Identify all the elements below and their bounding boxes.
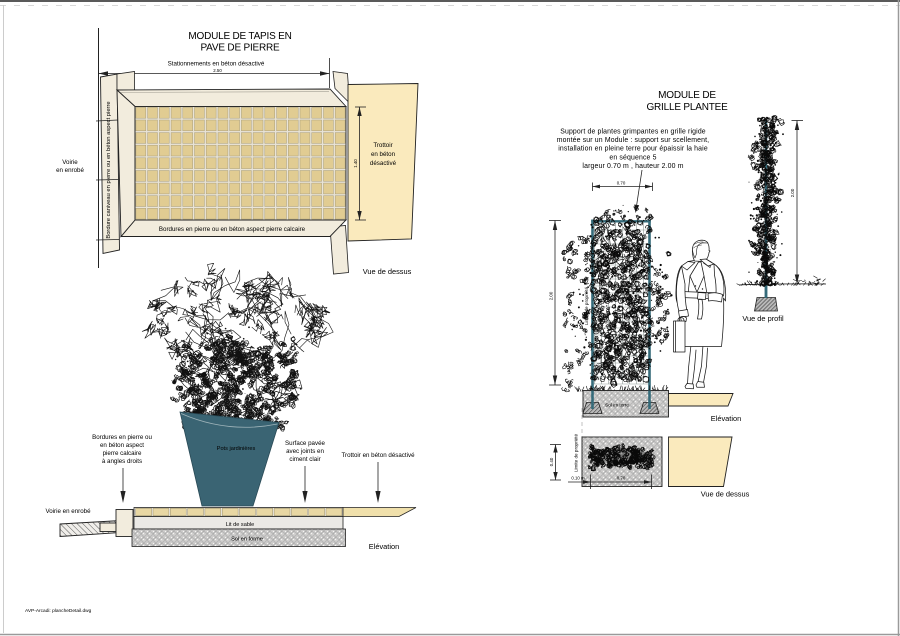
svg-text:Sol en forme: Sol en forme: [231, 537, 263, 543]
svg-text:montée sur un Module : support: montée sur un Module : support sur scell…: [557, 137, 709, 144]
svg-text:Vue de profil: Vue de profil: [742, 314, 784, 323]
svg-text:Sol en terre: Sol en terre: [605, 403, 629, 408]
svg-text:en enrobé: en enrobé: [56, 167, 84, 174]
svg-text:2.00: 2.00: [549, 291, 554, 300]
svg-text:Trottoir: Trottoir: [373, 142, 392, 149]
svg-text:2.00: 2.00: [790, 188, 795, 197]
svg-text:désactivé: désactivé: [370, 160, 397, 167]
svg-text:ciment clair: ciment clair: [289, 456, 320, 463]
svg-text:Lit de sable: Lit de sable: [226, 522, 255, 528]
svg-text:0.40: 0.40: [549, 457, 554, 466]
svg-text:en béton aspect: en béton aspect: [100, 442, 144, 449]
svg-text:AVP-Arcadi: plancheDetail.dwg: AVP-Arcadi: plancheDetail.dwg: [25, 608, 92, 614]
svg-text:Voirie: Voirie: [62, 159, 78, 166]
svg-text:Voirie en enrobé: Voirie en enrobé: [45, 508, 91, 515]
svg-text:2.50: 2.50: [213, 68, 222, 73]
svg-text:en séquence 5: en séquence 5: [609, 154, 656, 161]
svg-text:PAVE DE PIERRE: PAVE DE PIERRE: [200, 43, 280, 54]
svg-text:0.10 m: 0.10 m: [571, 476, 585, 481]
svg-text:Stationnements en béton désact: Stationnements en béton désactivé: [168, 61, 265, 68]
svg-text:Pots jardinières: Pots jardinières: [217, 446, 256, 452]
svg-text:Elévation: Elévation: [711, 414, 741, 423]
svg-text:pierre calcaire: pierre calcaire: [103, 450, 142, 457]
svg-text:1.40: 1.40: [353, 159, 358, 168]
svg-text:Bordures en pierre ou: Bordures en pierre ou: [92, 434, 152, 441]
svg-text:Bordure caniveau en pierre ou: Bordure caniveau en pierre ou en béton a…: [106, 101, 112, 238]
svg-text:largeur 0.70 m , hauteur 2.00: largeur 0.70 m , hauteur 2.00 m: [582, 163, 683, 170]
svg-text:Bordures en pierre ou en béton: Bordures en pierre ou en béton aspect pi…: [159, 226, 306, 233]
svg-text:installation en pleine terre p: installation en pleine terre pour épaiss…: [558, 146, 708, 153]
svg-text:Limite de propriété: Limite de propriété: [574, 434, 579, 472]
svg-text:GRILLE PLANTEE: GRILLE PLANTEE: [646, 102, 728, 113]
svg-text:en béton: en béton: [371, 151, 396, 158]
svg-text:0.70: 0.70: [617, 476, 626, 481]
svg-text:Support de plantes grimpantes: Support de plantes grimpantes en grille …: [560, 129, 706, 136]
svg-text:à angles droits: à angles droits: [102, 458, 142, 465]
svg-text:Surface pavée: Surface pavée: [285, 440, 325, 447]
svg-text:MODULE DE: MODULE DE: [658, 90, 716, 101]
svg-text:MODULE DE TAPIS EN: MODULE DE TAPIS EN: [188, 31, 291, 42]
svg-text:Trottoir en béton désactivé: Trottoir en béton désactivé: [341, 452, 415, 459]
svg-text:Vue de dessus: Vue de dessus: [701, 490, 750, 499]
svg-text:avec joints en: avec joints en: [286, 448, 324, 455]
svg-text:Elévation: Elévation: [369, 542, 399, 551]
svg-text:Vue de dessus: Vue de dessus: [363, 267, 412, 276]
svg-text:0.70: 0.70: [617, 181, 626, 186]
